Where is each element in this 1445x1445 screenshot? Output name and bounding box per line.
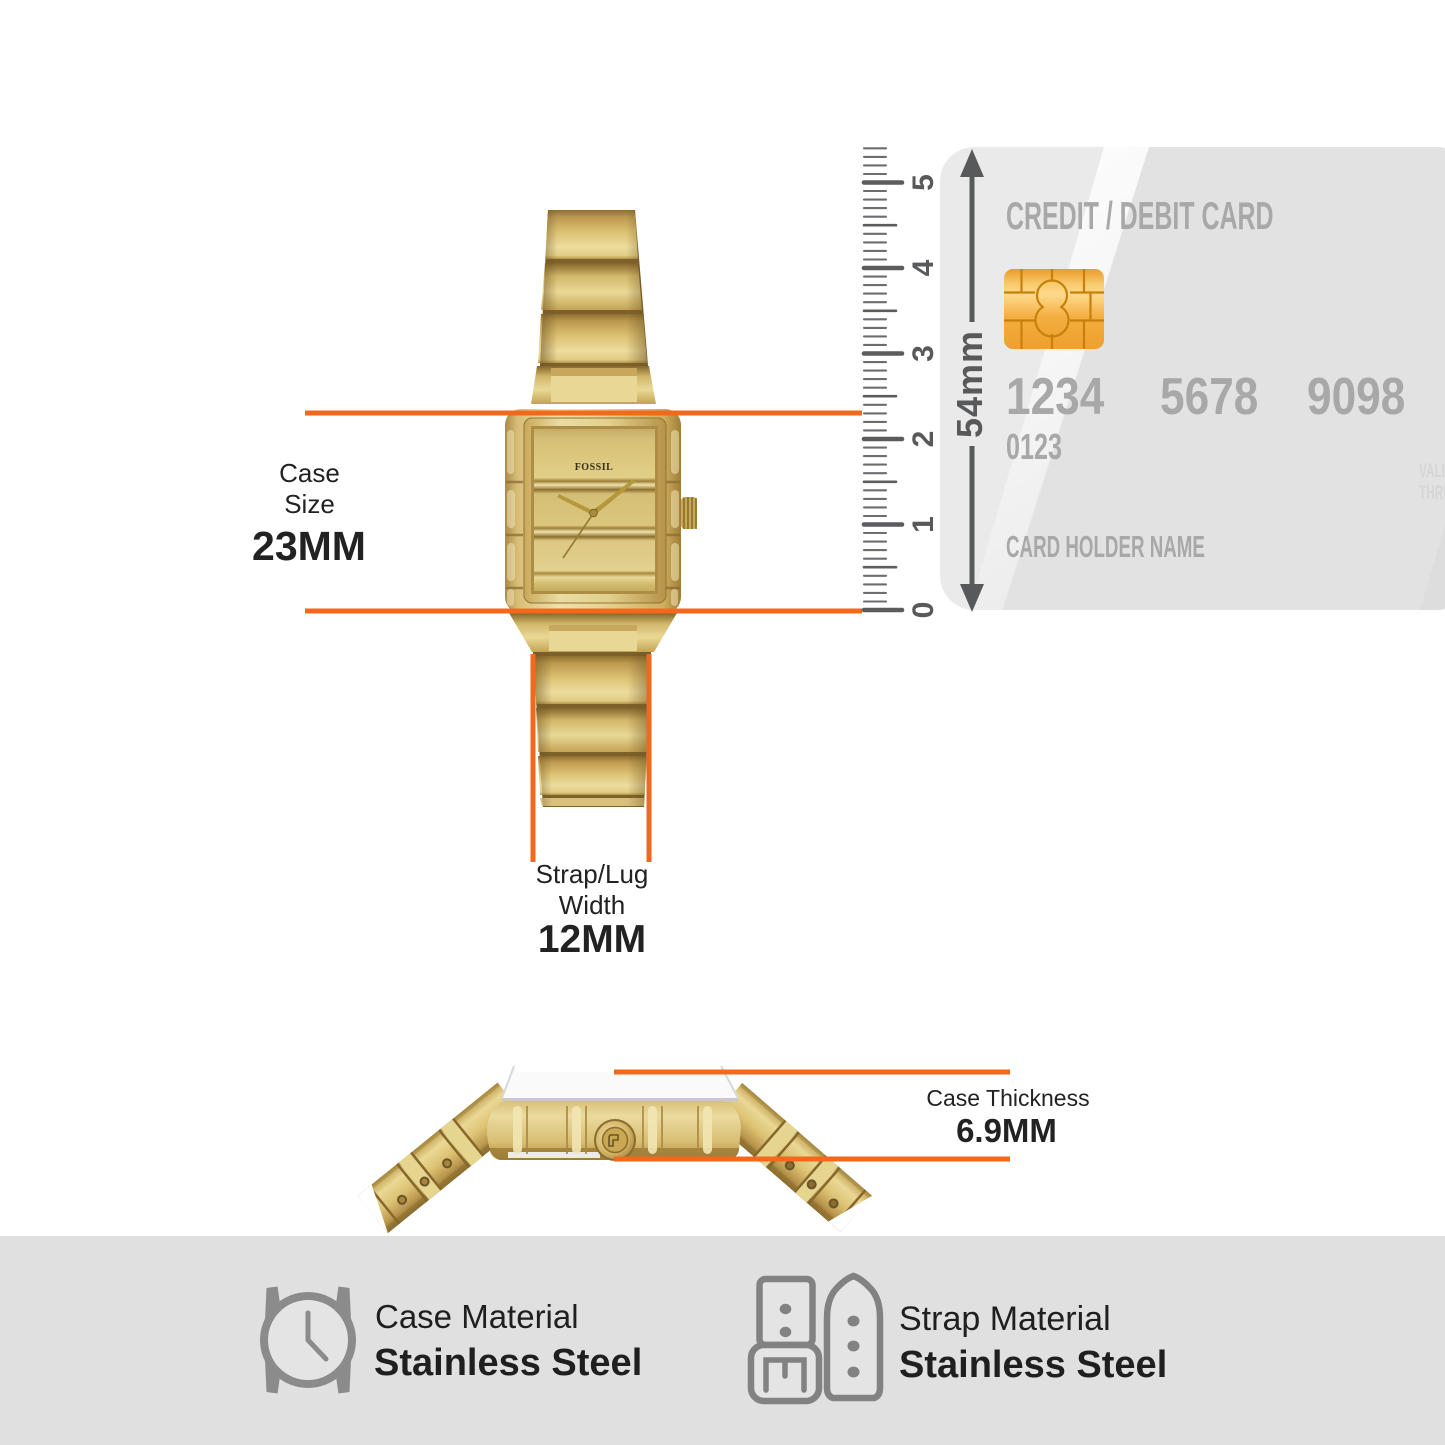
svg-text:Strap/Lug: Strap/Lug (536, 859, 649, 889)
svg-text:CREDIT / DEBIT CARD: CREDIT / DEBIT CARD (1006, 193, 1274, 237)
svg-text:3: 3 (907, 345, 940, 362)
svg-text:Stainless Steel: Stainless Steel (899, 1344, 1167, 1386)
svg-text:VALID: VALID (1419, 461, 1445, 481)
svg-text:1: 1 (907, 516, 940, 533)
svg-text:Case Material: Case Material (375, 1298, 579, 1335)
svg-text:12MM: 12MM (538, 918, 646, 961)
svg-text:Strap Material: Strap Material (899, 1300, 1111, 1338)
svg-text:Size: Size (284, 489, 335, 519)
svg-text:5: 5 (907, 174, 940, 191)
svg-text:Stainless Steel: Stainless Steel (374, 1342, 642, 1384)
svg-text:6.9MM: 6.9MM (956, 1112, 1057, 1149)
svg-text:5678: 5678 (1160, 368, 1258, 426)
svg-text:1234: 1234 (1006, 368, 1104, 426)
svg-text:2: 2 (907, 431, 940, 448)
svg-text:Case Thickness: Case Thickness (926, 1085, 1089, 1111)
svg-text:Case: Case (279, 458, 340, 488)
svg-text:Width: Width (559, 890, 625, 920)
svg-text:54mm: 54mm (949, 330, 990, 438)
svg-text:0: 0 (907, 602, 940, 619)
svg-text:THRU: THRU (1419, 483, 1445, 503)
svg-text:9098: 9098 (1307, 368, 1405, 426)
svg-text:23MM: 23MM (252, 523, 366, 569)
svg-text:0123: 0123 (1006, 427, 1062, 468)
svg-text:FOSSIL: FOSSIL (575, 462, 614, 473)
svg-text:4: 4 (907, 259, 940, 276)
svg-text:CARD HOLDER NAME: CARD HOLDER NAME (1006, 530, 1205, 564)
